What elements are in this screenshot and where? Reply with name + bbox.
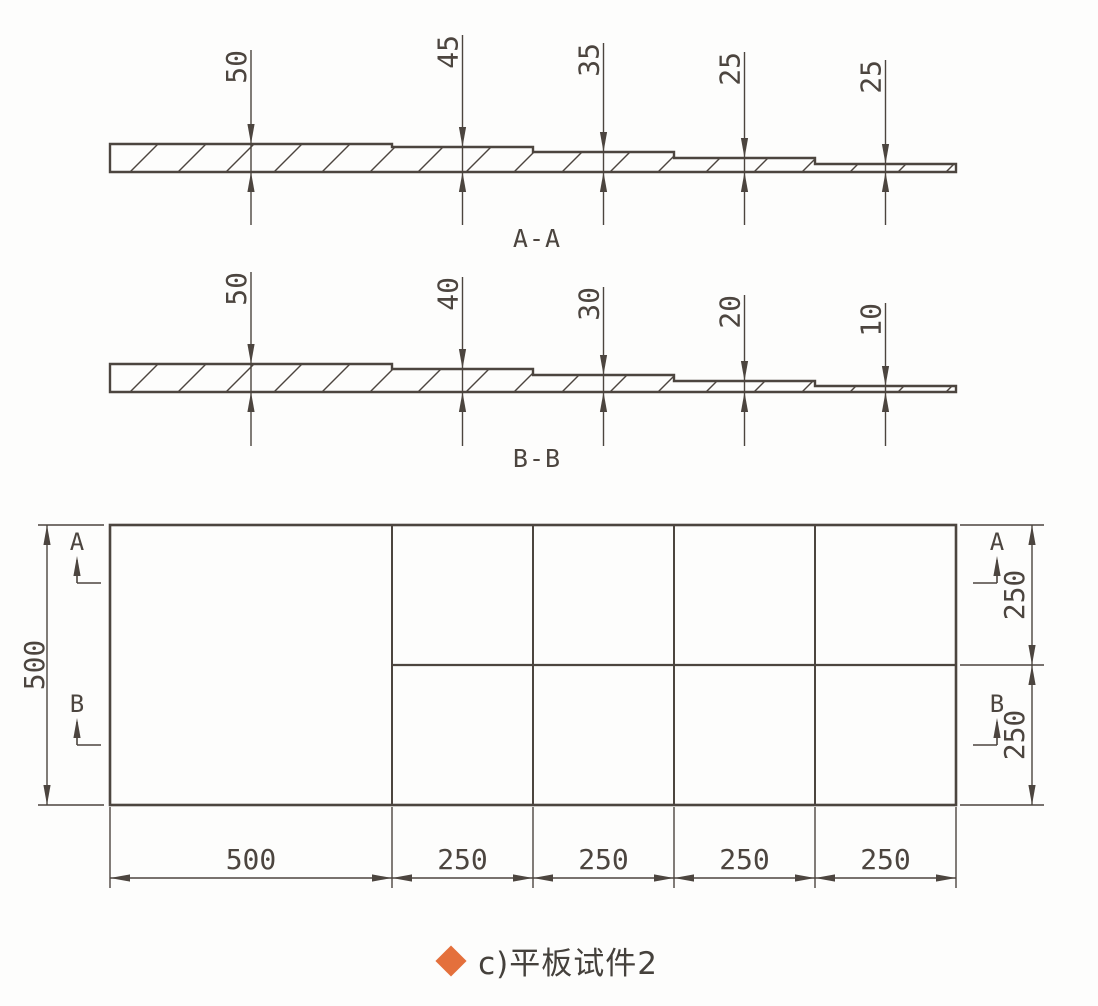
arrowhead-down-icon — [600, 355, 607, 375]
dimension-value-label: 25 — [714, 52, 747, 86]
arrowhead-down-icon — [882, 144, 889, 164]
thickness-dimension: 50 — [220, 272, 255, 446]
thickness-dimension: 10 — [855, 303, 890, 446]
hatch-line — [608, 138, 644, 174]
thickness-dimension: 25 — [855, 60, 890, 225]
arrowhead-up-icon — [247, 172, 254, 192]
section-title: B-B — [513, 444, 561, 473]
arrowhead-left-icon — [674, 874, 694, 881]
hatch-line — [800, 138, 836, 174]
arrowhead-up-icon — [882, 172, 889, 192]
thickness-dimension: 40 — [432, 277, 467, 446]
dimension-value-label: 35 — [573, 43, 606, 77]
arrowhead-down-icon — [1028, 785, 1035, 805]
hatch-line — [944, 138, 980, 174]
hatch-line — [704, 358, 740, 394]
arrowhead-down-icon — [459, 127, 466, 147]
thickness-dimension: 50 — [220, 50, 255, 225]
section-title: A-A — [513, 224, 561, 253]
thickness-dimension: 45 — [432, 35, 467, 225]
plan-bottom-dimensions: 500250250250250 — [110, 807, 956, 888]
dimension-value-label: 10 — [855, 303, 888, 337]
section-marker-right: B — [973, 690, 1004, 745]
arrowhead-down-icon — [247, 344, 254, 364]
arrowhead-up-icon — [459, 392, 466, 412]
hatch-line — [848, 358, 884, 394]
arrowhead-down-icon — [459, 349, 466, 369]
arrowhead-left-icon — [392, 874, 412, 881]
arrowhead-right-icon — [513, 874, 533, 881]
hatch-line — [752, 358, 788, 394]
plate-profile-outline — [110, 144, 956, 172]
hatch-line — [704, 138, 740, 174]
dimension-value-label: 40 — [432, 277, 465, 311]
arrowhead-down-icon — [43, 785, 50, 805]
section-marker-letter: B — [70, 690, 84, 718]
arrowhead-right-icon — [936, 874, 956, 881]
arrowhead-up-icon — [600, 172, 607, 192]
hatch-line — [992, 358, 1028, 394]
dimension-value-label: 30 — [573, 287, 606, 321]
arrowhead-up-icon — [73, 718, 80, 738]
arrowhead-down-icon — [741, 361, 748, 381]
arrowhead-right-icon — [654, 874, 674, 881]
arrowhead-up-icon — [600, 392, 607, 412]
dimension-value-label: 250 — [719, 843, 770, 876]
thickness-dimension: 20 — [714, 295, 749, 446]
dimension-value-label: 250 — [998, 570, 1031, 621]
arrowhead-up-icon — [993, 556, 1000, 576]
dimension-value-label: 45 — [432, 35, 465, 69]
hatch-line — [944, 358, 980, 394]
section-marker-letter: A — [70, 528, 85, 556]
thickness-dimension: 35 — [573, 43, 608, 225]
caption-diamond-icon — [436, 945, 467, 976]
arrowhead-down-icon — [882, 366, 889, 386]
hatch-line — [896, 138, 932, 174]
arrowhead-up-icon — [43, 525, 50, 545]
dimension-value-label: 500 — [18, 640, 51, 691]
hatch-line — [512, 138, 548, 174]
dimension-value-label: 20 — [714, 295, 747, 329]
section-marker-letter: B — [990, 690, 1004, 718]
hatch-line — [848, 138, 884, 174]
arrowhead-left-icon — [533, 874, 553, 881]
plate-specimen-drawing: 5045352525A-A5040302010B-B50025025050025… — [0, 0, 1098, 1006]
arrowhead-up-icon — [247, 392, 254, 412]
engineering-drawing-canvas: 5045352525A-A5040302010B-B50025025050025… — [0, 0, 1098, 1006]
dimension-value-label: 50 — [220, 272, 253, 306]
dimension-value-label: 250 — [860, 843, 911, 876]
arrowhead-right-icon — [372, 874, 392, 881]
dimension-value-label: 500 — [226, 843, 277, 876]
dimension-value-label: 250 — [578, 843, 629, 876]
dimension-value-label: 250 — [437, 843, 488, 876]
arrowhead-left-icon — [815, 874, 835, 881]
caption-text: c)平板试件2 — [478, 938, 658, 983]
hatch-line — [896, 358, 932, 394]
thickness-dimension: 25 — [714, 52, 749, 225]
hatch-line — [752, 138, 788, 174]
section-marker-letter: A — [990, 528, 1005, 556]
plan-right-dimensions: 250250 — [960, 525, 1044, 805]
arrowhead-up-icon — [459, 172, 466, 192]
arrowhead-left-icon — [110, 874, 130, 881]
arrowhead-up-icon — [882, 392, 889, 412]
thickness-dimension: 30 — [573, 287, 608, 446]
dimension-value-label: 25 — [855, 60, 888, 94]
hatch-line — [800, 358, 836, 394]
section-marker-left: A — [70, 528, 101, 583]
arrowhead-up-icon — [1028, 525, 1035, 545]
section-marker-right: A — [973, 528, 1005, 583]
arrowhead-down-icon — [741, 138, 748, 158]
dimension-value-label: 50 — [220, 50, 253, 84]
plan-view: 500250250500250250250250ABAB — [18, 525, 1044, 888]
arrowhead-up-icon — [741, 392, 748, 412]
arrowhead-right-icon — [795, 874, 815, 881]
arrowhead-down-icon — [600, 132, 607, 152]
arrowhead-up-icon — [73, 556, 80, 576]
arrowhead-up-icon — [741, 172, 748, 192]
section-view-A-A: 5045352525A-A — [80, 35, 1028, 253]
hatch-line — [416, 358, 452, 394]
hatch-line — [992, 138, 1028, 174]
figure-caption: c)平板试件2 — [0, 938, 1098, 983]
hatch-line — [416, 138, 452, 174]
hatch-line — [464, 358, 500, 394]
arrowhead-down-icon — [1028, 645, 1035, 665]
section-view-B-B: 5040302010B-B — [80, 272, 1028, 473]
hatch-line — [464, 138, 500, 174]
plan-left-dimension: 500 — [18, 525, 104, 805]
plate-profile-outline — [110, 364, 956, 392]
arrowhead-down-icon — [247, 124, 254, 144]
hatch-line — [560, 138, 596, 174]
arrowhead-up-icon — [1028, 665, 1035, 685]
section-marker-left: B — [70, 690, 101, 745]
